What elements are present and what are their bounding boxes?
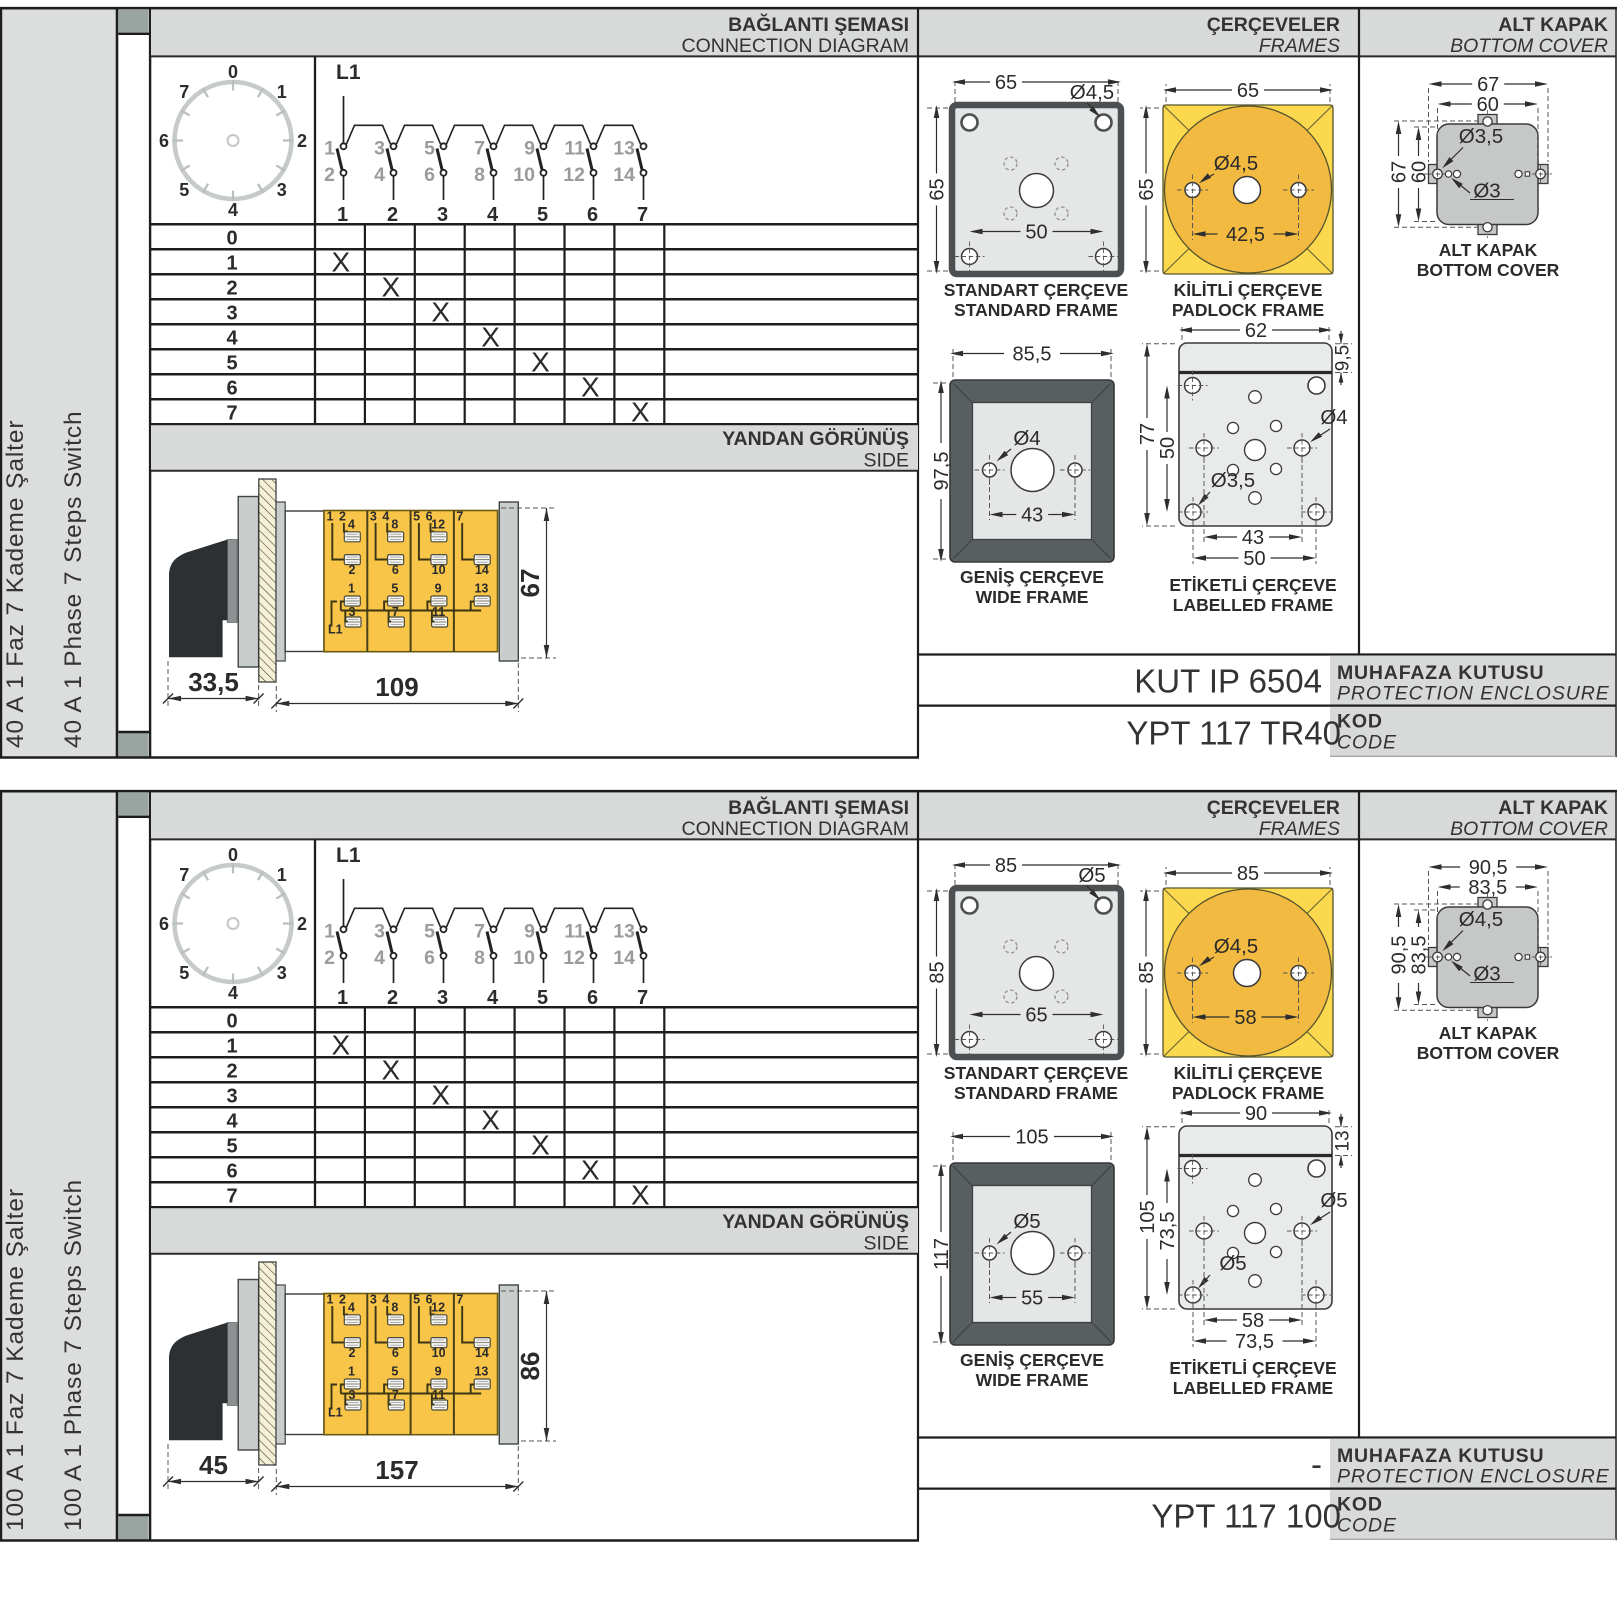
- svg-text:4: 4: [348, 518, 355, 532]
- svg-text:0: 0: [226, 1011, 237, 1033]
- svg-text:1: 1: [277, 82, 287, 102]
- svg-text:97,5: 97,5: [931, 452, 953, 491]
- svg-text:11: 11: [432, 605, 445, 619]
- svg-text:MUHAFAZA KUTUSU: MUHAFAZA KUTUSU: [1337, 662, 1544, 684]
- svg-text:4: 4: [226, 1111, 238, 1133]
- svg-text:X: X: [481, 1105, 500, 1136]
- svg-text:X: X: [481, 322, 500, 353]
- svg-text:65: 65: [927, 178, 949, 200]
- svg-text:X: X: [631, 397, 650, 428]
- svg-text:X: X: [581, 372, 600, 403]
- svg-text:43: 43: [1021, 505, 1043, 527]
- svg-text:58: 58: [1242, 1310, 1264, 1332]
- svg-text:5: 5: [413, 510, 420, 524]
- svg-text:6: 6: [392, 563, 399, 577]
- svg-text:5: 5: [424, 138, 435, 160]
- svg-text:0: 0: [228, 62, 238, 82]
- svg-text:10: 10: [513, 164, 535, 186]
- svg-text:4: 4: [374, 164, 385, 186]
- svg-text:3: 3: [374, 138, 385, 160]
- svg-text:Ø3,5: Ø3,5: [1211, 469, 1255, 492]
- svg-text:1: 1: [327, 1293, 334, 1307]
- svg-text:6: 6: [587, 987, 598, 1009]
- svg-text:2: 2: [324, 947, 335, 969]
- svg-text:5: 5: [179, 180, 189, 200]
- svg-text:X: X: [531, 347, 550, 378]
- svg-text:6: 6: [226, 1161, 237, 1183]
- svg-text:5: 5: [391, 1364, 398, 1378]
- svg-text:5: 5: [226, 353, 237, 375]
- svg-text:4: 4: [226, 328, 238, 350]
- svg-text:KUT IP 6504: KUT IP 6504: [1134, 663, 1322, 700]
- svg-text:85: 85: [1237, 863, 1259, 885]
- svg-text:9: 9: [435, 1364, 442, 1378]
- svg-text:50: 50: [1243, 548, 1265, 570]
- svg-text:GENİŞ ÇERÇEVE: GENİŞ ÇERÇEVE: [960, 1350, 1104, 1370]
- svg-text:85: 85: [995, 855, 1017, 877]
- svg-text:12: 12: [563, 164, 585, 186]
- svg-text:86: 86: [515, 1352, 545, 1381]
- svg-text:4: 4: [228, 200, 238, 220]
- svg-text:10: 10: [432, 1346, 446, 1360]
- svg-text:11: 11: [564, 138, 585, 160]
- svg-text:7: 7: [226, 1186, 237, 1208]
- svg-text:3: 3: [349, 1388, 356, 1402]
- svg-text:0: 0: [228, 845, 238, 865]
- svg-text:58: 58: [1234, 1007, 1256, 1029]
- svg-text:7: 7: [392, 1388, 399, 1402]
- svg-text:6: 6: [159, 131, 169, 151]
- svg-text:4: 4: [228, 983, 238, 1003]
- svg-text:X: X: [431, 1080, 450, 1111]
- svg-text:13: 13: [613, 921, 635, 943]
- svg-text:3: 3: [226, 303, 237, 325]
- svg-text:65: 65: [1237, 80, 1259, 102]
- svg-text:X: X: [531, 1130, 550, 1161]
- svg-text:117: 117: [931, 1238, 953, 1270]
- svg-text:7: 7: [179, 865, 189, 885]
- svg-text:4: 4: [487, 204, 499, 226]
- svg-text:13: 13: [613, 138, 635, 160]
- svg-text:42,5: 42,5: [1226, 224, 1265, 246]
- svg-text:X: X: [381, 272, 400, 303]
- svg-text:PROTECTION ENCLOSURE: PROTECTION ENCLOSURE: [1337, 1466, 1610, 1488]
- svg-text:100 A 1 Phase 7 Steps Switch: 100 A 1 Phase 7 Steps Switch: [60, 1179, 87, 1531]
- svg-text:Ø4,5: Ø4,5: [1070, 81, 1114, 104]
- svg-text:ETİKETLİ ÇERÇEVE: ETİKETLİ ÇERÇEVE: [1169, 1358, 1336, 1378]
- svg-text:L1: L1: [336, 844, 361, 867]
- svg-text:Ø4: Ø4: [1013, 427, 1040, 450]
- svg-text:MUHAFAZA KUTUSU: MUHAFAZA KUTUSU: [1337, 1445, 1544, 1467]
- svg-text:157: 157: [375, 1455, 418, 1485]
- svg-text:YANDAN GÖRÜNÜŞ: YANDAN GÖRÜNÜŞ: [722, 427, 909, 450]
- svg-text:73,5: 73,5: [1235, 1331, 1274, 1353]
- svg-text:85: 85: [927, 961, 949, 983]
- svg-text:6: 6: [392, 1346, 399, 1360]
- svg-text:90,5: 90,5: [1389, 936, 1411, 975]
- svg-text:GENİŞ ÇERÇEVE: GENİŞ ÇERÇEVE: [960, 567, 1104, 587]
- svg-text:3: 3: [437, 204, 448, 226]
- svg-text:5: 5: [391, 581, 398, 595]
- svg-text:4: 4: [382, 510, 389, 524]
- svg-text:65: 65: [1025, 1005, 1047, 1027]
- svg-text:14: 14: [475, 1346, 489, 1360]
- svg-text:73,5: 73,5: [1157, 1212, 1179, 1251]
- svg-text:67: 67: [1477, 74, 1499, 96]
- svg-text:4: 4: [382, 1293, 389, 1307]
- svg-text:50: 50: [1157, 437, 1179, 459]
- svg-text:67: 67: [515, 569, 545, 598]
- svg-text:2: 2: [339, 510, 346, 524]
- svg-text:L1: L1: [328, 623, 343, 637]
- svg-text:FRAMES: FRAMES: [1259, 35, 1340, 57]
- svg-text:5: 5: [226, 1136, 237, 1158]
- svg-text:12: 12: [431, 1301, 445, 1315]
- svg-text:8: 8: [391, 1301, 398, 1315]
- svg-text:2: 2: [297, 914, 307, 934]
- svg-text:ALT KAPAK: ALT KAPAK: [1498, 797, 1608, 819]
- svg-text:3: 3: [437, 987, 448, 1009]
- svg-text:Ø5: Ø5: [1219, 1252, 1246, 1275]
- svg-text:LABELLED FRAME: LABELLED FRAME: [1173, 595, 1333, 615]
- svg-text:3: 3: [277, 180, 287, 200]
- svg-text:7: 7: [474, 138, 485, 160]
- svg-text:7: 7: [179, 82, 189, 102]
- svg-text:2: 2: [297, 131, 307, 151]
- svg-text:ALT KAPAK: ALT KAPAK: [1498, 14, 1608, 36]
- svg-text:Ø4,5: Ø4,5: [1459, 908, 1503, 931]
- svg-text:1: 1: [337, 204, 348, 226]
- svg-text:7: 7: [474, 921, 485, 943]
- svg-text:50: 50: [1025, 222, 1047, 244]
- svg-text:5: 5: [424, 921, 435, 943]
- svg-text:YPT 117 100: YPT 117 100: [1151, 1498, 1341, 1535]
- svg-text:5: 5: [413, 1293, 420, 1307]
- svg-text:43: 43: [1242, 527, 1264, 549]
- svg-text:1: 1: [226, 253, 237, 275]
- svg-text:9,5: 9,5: [1333, 345, 1354, 371]
- svg-text:10: 10: [513, 947, 535, 969]
- svg-text:CONNECTION DIAGRAM: CONNECTION DIAGRAM: [681, 818, 909, 840]
- svg-text:KOD: KOD: [1337, 711, 1383, 733]
- svg-text:7: 7: [456, 510, 463, 524]
- svg-text:Ø4: Ø4: [1320, 406, 1347, 429]
- svg-text:40 A 1 Phase 7 Steps Switch: 40 A 1 Phase 7 Steps Switch: [60, 410, 87, 748]
- svg-text:83,5: 83,5: [1468, 877, 1507, 899]
- svg-text:13: 13: [1333, 1130, 1354, 1151]
- svg-text:LABELLED FRAME: LABELLED FRAME: [1173, 1378, 1333, 1398]
- svg-text:2: 2: [226, 278, 237, 300]
- svg-text:12: 12: [563, 947, 585, 969]
- svg-text:7: 7: [392, 605, 399, 619]
- svg-text:KİLİTLİ ÇERÇEVE: KİLİTLİ ÇERÇEVE: [1174, 1063, 1323, 1083]
- svg-text:1: 1: [324, 921, 335, 943]
- svg-text:SIDE: SIDE: [863, 1233, 909, 1255]
- svg-text:33,5: 33,5: [188, 667, 239, 697]
- svg-text:L1: L1: [336, 61, 361, 84]
- svg-text:40 A 1 Faz 7 Kademe Şalter: 40 A 1 Faz 7 Kademe Şalter: [2, 420, 29, 748]
- svg-text:Ø5: Ø5: [1078, 864, 1105, 887]
- svg-text:CODE: CODE: [1337, 732, 1397, 754]
- svg-text:8: 8: [391, 518, 398, 532]
- svg-text:2: 2: [349, 563, 356, 577]
- svg-text:BAĞLANTI ŞEMASI: BAĞLANTI ŞEMASI: [728, 13, 909, 36]
- svg-text:BAĞLANTI ŞEMASI: BAĞLANTI ŞEMASI: [728, 796, 909, 819]
- svg-text:X: X: [581, 1155, 600, 1186]
- svg-text:BOTTOM COVER: BOTTOM COVER: [1450, 35, 1608, 57]
- svg-text:1: 1: [327, 510, 334, 524]
- svg-text:5: 5: [537, 204, 548, 226]
- svg-text:3: 3: [226, 1086, 237, 1108]
- svg-text:3: 3: [277, 963, 287, 983]
- svg-text:3: 3: [370, 510, 377, 524]
- svg-text:65: 65: [1136, 178, 1158, 200]
- svg-text:6: 6: [226, 378, 237, 400]
- svg-text:STANDART ÇERÇEVE: STANDART ÇERÇEVE: [944, 1063, 1128, 1083]
- svg-text:8: 8: [474, 164, 485, 186]
- svg-text:CODE: CODE: [1337, 1515, 1397, 1537]
- svg-text:Ø4,5: Ø4,5: [1214, 935, 1258, 958]
- svg-text:1: 1: [277, 865, 287, 885]
- svg-text:45: 45: [199, 1450, 228, 1480]
- svg-text:14: 14: [613, 164, 635, 186]
- svg-text:STANDARD FRAME: STANDARD FRAME: [954, 300, 1118, 320]
- svg-text:2: 2: [226, 1061, 237, 1083]
- svg-text:11: 11: [564, 921, 585, 943]
- svg-text:55: 55: [1021, 1288, 1043, 1310]
- svg-text:1: 1: [348, 1364, 355, 1378]
- svg-text:WIDE FRAME: WIDE FRAME: [976, 1370, 1089, 1390]
- svg-text:60: 60: [1409, 161, 1431, 183]
- svg-text:105: 105: [1137, 1200, 1159, 1233]
- svg-text:2: 2: [387, 204, 398, 226]
- svg-text:9: 9: [435, 581, 442, 595]
- svg-text:105: 105: [1015, 1127, 1048, 1149]
- svg-text:14: 14: [475, 563, 489, 577]
- svg-text:4: 4: [374, 947, 385, 969]
- svg-text:4: 4: [487, 987, 499, 1009]
- svg-text:BOTTOM COVER: BOTTOM COVER: [1450, 818, 1608, 840]
- svg-text:2: 2: [349, 1346, 356, 1360]
- svg-text:Ø5: Ø5: [1320, 1189, 1347, 1212]
- svg-text:8: 8: [474, 947, 485, 969]
- svg-text:6: 6: [159, 914, 169, 934]
- svg-text:85: 85: [1136, 961, 1158, 983]
- svg-text:YANDAN GÖRÜNÜŞ: YANDAN GÖRÜNÜŞ: [722, 1210, 909, 1233]
- svg-text:6: 6: [424, 947, 435, 969]
- svg-text:SIDE: SIDE: [863, 450, 909, 472]
- svg-text:X: X: [332, 1030, 351, 1061]
- svg-text:BOTTOM COVER: BOTTOM COVER: [1417, 260, 1560, 280]
- svg-text:0: 0: [226, 228, 237, 250]
- svg-text:13: 13: [474, 1364, 488, 1378]
- svg-text:1: 1: [337, 987, 348, 1009]
- svg-text:1: 1: [324, 138, 335, 160]
- svg-text:WIDE FRAME: WIDE FRAME: [976, 587, 1089, 607]
- svg-text:77: 77: [1137, 423, 1159, 445]
- svg-text:PROTECTION ENCLOSURE: PROTECTION ENCLOSURE: [1337, 683, 1610, 705]
- svg-text:STANDARD FRAME: STANDARD FRAME: [954, 1083, 1118, 1103]
- svg-text:PADLOCK FRAME: PADLOCK FRAME: [1172, 300, 1324, 320]
- svg-text:7: 7: [637, 204, 648, 226]
- svg-text:7: 7: [226, 403, 237, 425]
- svg-text:90,5: 90,5: [1469, 857, 1508, 879]
- svg-text:11: 11: [432, 1388, 445, 1402]
- svg-text:100 A 1 Faz 7 Kademe Şalter: 100 A 1 Faz 7 Kademe Şalter: [2, 1188, 29, 1531]
- svg-text:3: 3: [349, 605, 356, 619]
- svg-text:13: 13: [474, 581, 488, 595]
- svg-text:-: -: [1311, 1446, 1322, 1483]
- svg-text:2: 2: [324, 164, 335, 186]
- svg-text:7: 7: [637, 987, 648, 1009]
- svg-text:2: 2: [387, 987, 398, 1009]
- svg-text:9: 9: [524, 921, 535, 943]
- svg-text:KİLİTLİ ÇERÇEVE: KİLİTLİ ÇERÇEVE: [1174, 280, 1323, 300]
- svg-text:67: 67: [1389, 161, 1411, 183]
- svg-text:6: 6: [587, 204, 598, 226]
- svg-text:CONNECTION DIAGRAM: CONNECTION DIAGRAM: [681, 35, 909, 57]
- svg-text:X: X: [332, 247, 351, 278]
- svg-text:ÇERÇEVELER: ÇERÇEVELER: [1207, 14, 1340, 36]
- svg-text:KOD: KOD: [1337, 1494, 1383, 1516]
- svg-text:2: 2: [339, 1293, 346, 1307]
- svg-text:YPT 117 TR40: YPT 117 TR40: [1126, 715, 1341, 752]
- svg-text:90: 90: [1245, 1103, 1267, 1125]
- svg-text:3: 3: [374, 921, 385, 943]
- svg-text:7: 7: [456, 1293, 463, 1307]
- svg-text:65: 65: [995, 72, 1017, 94]
- svg-text:BOTTOM COVER: BOTTOM COVER: [1417, 1043, 1560, 1063]
- svg-text:STANDART ÇERÇEVE: STANDART ÇERÇEVE: [944, 280, 1128, 300]
- svg-text:14: 14: [613, 947, 635, 969]
- svg-text:Ø3,5: Ø3,5: [1459, 125, 1503, 148]
- svg-text:FRAMES: FRAMES: [1259, 818, 1340, 840]
- svg-text:ÇERÇEVELER: ÇERÇEVELER: [1207, 797, 1340, 819]
- svg-text:ALT KAPAK: ALT KAPAK: [1439, 240, 1538, 260]
- svg-text:12: 12: [431, 518, 445, 532]
- svg-text:L1: L1: [328, 1406, 343, 1420]
- svg-text:1: 1: [226, 1036, 237, 1058]
- svg-text:5: 5: [179, 963, 189, 983]
- svg-text:62: 62: [1245, 320, 1267, 342]
- svg-text:X: X: [631, 1180, 650, 1211]
- svg-text:5: 5: [537, 987, 548, 1009]
- svg-text:85,5: 85,5: [1013, 344, 1052, 366]
- svg-text:Ø5: Ø5: [1013, 1210, 1040, 1233]
- svg-text:109: 109: [375, 672, 418, 702]
- svg-text:60: 60: [1477, 94, 1499, 116]
- svg-text:Ø4,5: Ø4,5: [1214, 152, 1258, 175]
- svg-text:ALT KAPAK: ALT KAPAK: [1439, 1023, 1538, 1043]
- svg-text:10: 10: [432, 563, 446, 577]
- svg-text:X: X: [431, 297, 450, 328]
- svg-text:83,5: 83,5: [1409, 936, 1431, 975]
- svg-text:4: 4: [348, 1301, 355, 1315]
- svg-text:3: 3: [370, 1293, 377, 1307]
- svg-text:6: 6: [424, 164, 435, 186]
- svg-text:9: 9: [524, 138, 535, 160]
- svg-text:X: X: [381, 1055, 400, 1086]
- svg-text:PADLOCK FRAME: PADLOCK FRAME: [1172, 1083, 1324, 1103]
- svg-text:ETİKETLİ ÇERÇEVE: ETİKETLİ ÇERÇEVE: [1169, 575, 1336, 595]
- svg-text:1: 1: [348, 581, 355, 595]
